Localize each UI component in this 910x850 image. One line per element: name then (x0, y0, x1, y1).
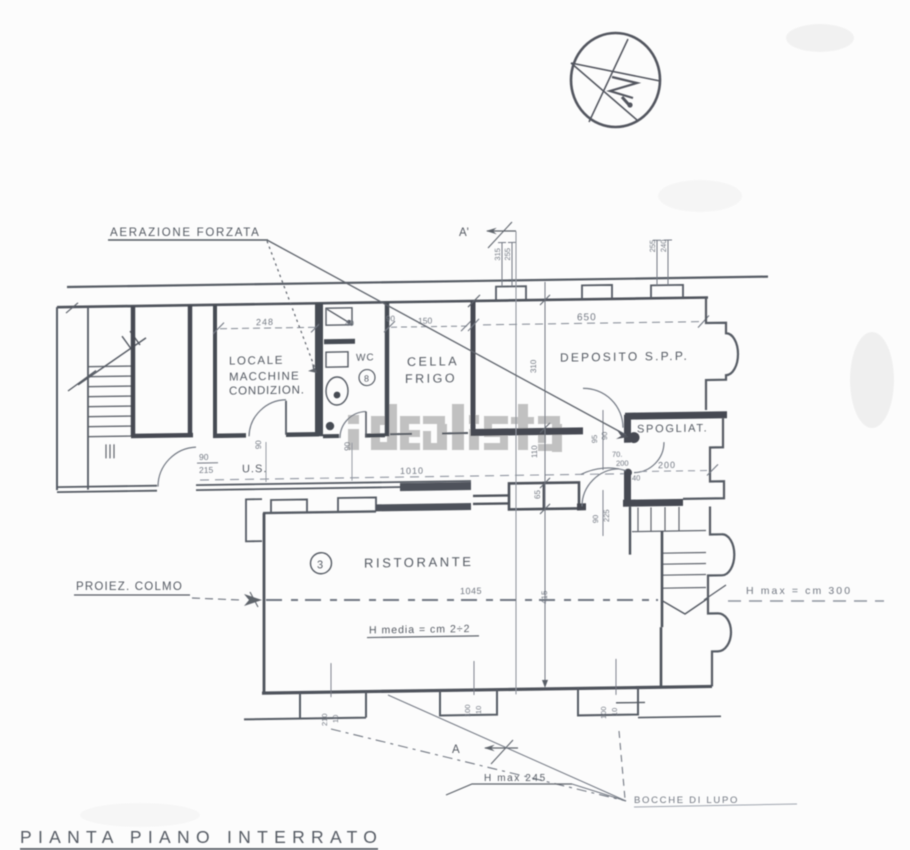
svg-text:65: 65 (533, 490, 542, 500)
svg-text:95: 95 (590, 435, 599, 443)
svg-text:MACCHINE: MACCHINE (229, 371, 300, 384)
svg-text:LOCALE: LOCALE (229, 355, 284, 368)
svg-text:90: 90 (600, 432, 609, 440)
svg-text:A': A' (459, 227, 469, 239)
svg-text:100: 100 (599, 706, 608, 719)
svg-text:310: 310 (529, 359, 538, 373)
svg-text:255: 255 (648, 240, 657, 253)
svg-text:SPOGLIAT.: SPOGLIAT. (637, 422, 708, 435)
svg-text:90: 90 (254, 440, 263, 450)
svg-text:U.S.: U.S. (242, 463, 267, 475)
svg-text:FRIGO: FRIGO (405, 371, 457, 386)
svg-text:3: 3 (317, 559, 323, 571)
svg-text:150: 150 (418, 316, 432, 326)
svg-text:90: 90 (343, 441, 352, 451)
svg-text:10: 10 (331, 715, 340, 723)
svg-text:315: 315 (493, 248, 502, 261)
svg-text:415: 415 (540, 590, 549, 604)
svg-text:PROIEZ. COLMO: PROIEZ. COLMO (76, 581, 183, 593)
svg-text:H media = cm 2÷2: H media = cm 2÷2 (369, 623, 470, 637)
svg-text:90: 90 (591, 515, 600, 523)
svg-text:DEPOSITO S.P.P.: DEPOSITO S.P.P. (560, 349, 689, 365)
svg-text:650: 650 (577, 312, 597, 323)
svg-text:CONDIZION.: CONDIZION. (229, 384, 305, 397)
svg-text:110: 110 (530, 445, 539, 458)
svg-text:1045: 1045 (460, 586, 482, 596)
svg-text:215: 215 (199, 465, 213, 475)
svg-text:10: 10 (610, 708, 619, 716)
svg-text:BOCCHE DI LUPO: BOCCHE DI LUPO (634, 795, 739, 806)
svg-text:70.: 70. (612, 450, 622, 459)
svg-text:200: 200 (616, 459, 629, 468)
svg-text:40: 40 (345, 319, 354, 328)
svg-text:8: 8 (364, 374, 369, 384)
svg-text:248: 248 (256, 317, 274, 327)
svg-text:225: 225 (602, 509, 611, 522)
svg-text:PIANTA PIANO INTERRATO: PIANTA PIANO INTERRATO (20, 827, 383, 847)
svg-text:H max = cm 300: H max = cm 300 (746, 585, 852, 597)
svg-text:10: 10 (474, 706, 483, 714)
svg-text:200: 200 (658, 460, 676, 470)
svg-text:A: A (452, 744, 460, 756)
svg-text:40: 40 (632, 474, 640, 483)
svg-text:1010: 1010 (400, 466, 424, 476)
svg-text:90: 90 (199, 452, 209, 462)
svg-text:90: 90 (386, 314, 395, 323)
svg-text:210: 210 (320, 713, 329, 726)
svg-text:RISTORANTE: RISTORANTE (364, 554, 474, 571)
svg-text:AERAZIONE FORZATA: AERAZIONE FORZATA (110, 227, 261, 239)
svg-text:H max 245: H max 245 (484, 773, 547, 784)
svg-text:WC: WC (356, 352, 375, 363)
svg-text:255: 255 (503, 248, 512, 261)
svg-text:CELLA: CELLA (407, 354, 459, 369)
svg-text:100: 100 (463, 704, 472, 717)
svg-text:240: 240 (659, 240, 668, 253)
